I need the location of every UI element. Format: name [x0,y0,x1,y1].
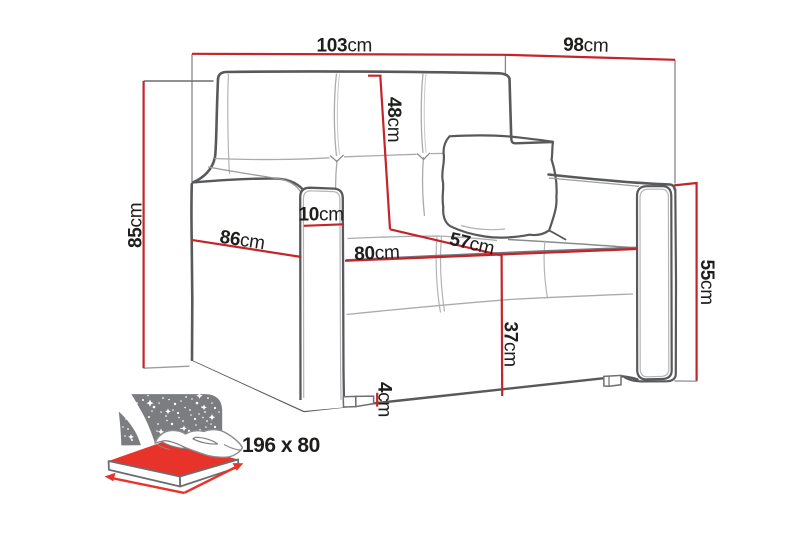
svg-text:37cm: 37cm [500,322,521,367]
svg-text:48cm: 48cm [383,97,404,142]
svg-text:55cm: 55cm [696,260,717,305]
svg-text:10cm: 10cm [299,204,344,225]
svg-text:85cm: 85cm [126,203,147,248]
svg-text:4cm: 4cm [374,382,395,417]
svg-text:98cm: 98cm [563,35,609,57]
svg-text:196 x 80: 196 x 80 [242,434,320,457]
svg-text:80cm: 80cm [354,242,400,265]
svg-text:103cm: 103cm [317,35,373,56]
